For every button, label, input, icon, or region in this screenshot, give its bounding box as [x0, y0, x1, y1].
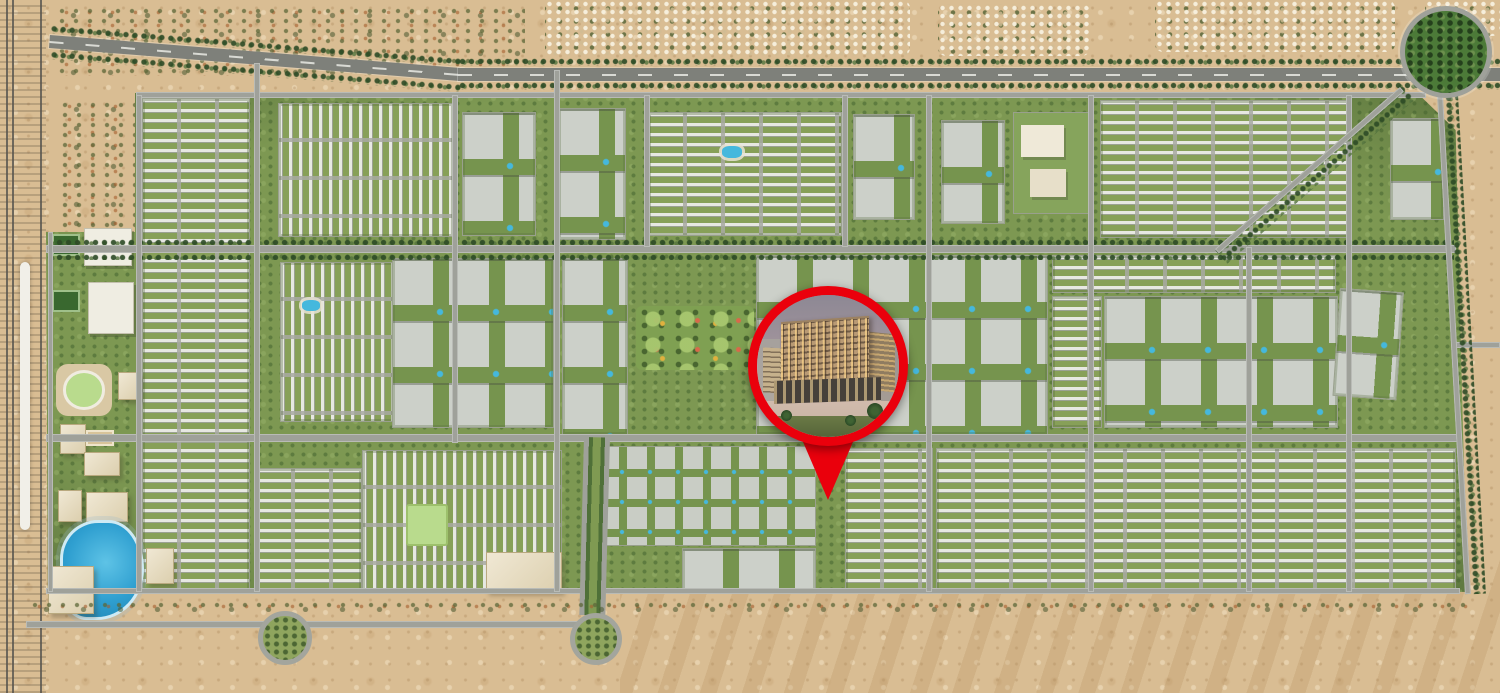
location-pin-marker[interactable] — [0, 0, 1500, 693]
building-photo — [757, 295, 899, 437]
photo-lawn — [757, 416, 899, 437]
palm-tree-icon — [867, 403, 883, 419]
photo-building-podium — [774, 377, 881, 403]
aerial-masterplan-map — [0, 0, 1500, 693]
palm-tree-icon — [845, 415, 856, 426]
pin-photo-frame — [748, 286, 908, 446]
